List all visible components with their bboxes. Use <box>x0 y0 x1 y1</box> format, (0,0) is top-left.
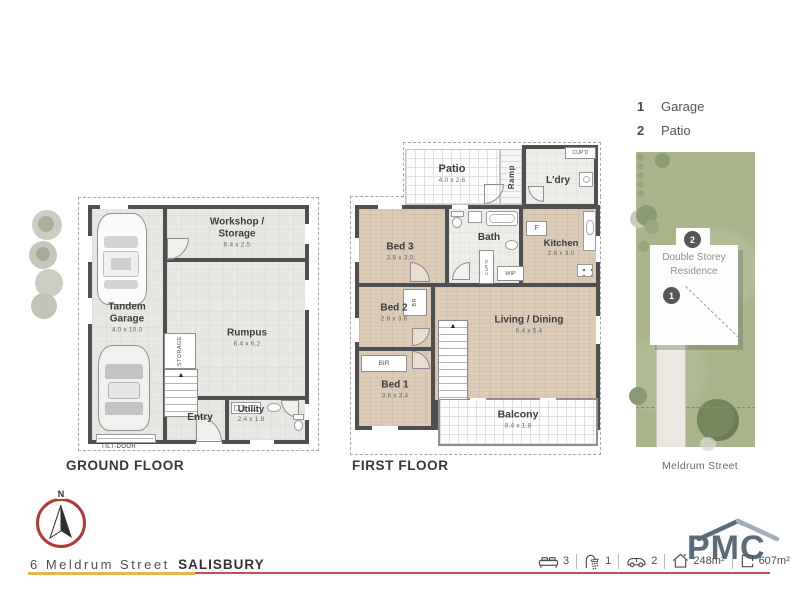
stat-cars: 2 <box>626 554 657 568</box>
legend-number: 1 <box>637 99 653 114</box>
divider <box>664 554 665 569</box>
legend: 1 Garage 2 Patio <box>637 99 704 138</box>
land-area-icon <box>740 553 755 569</box>
shrub <box>637 190 644 197</box>
stairs-up-arrow-icon: ▲ <box>450 323 457 330</box>
storage-label: STORAGE <box>177 336 183 366</box>
toilet-bowl <box>452 217 462 228</box>
entry-label: Entry <box>175 412 225 424</box>
window <box>305 280 309 310</box>
shower-vanity <box>468 211 482 223</box>
window <box>100 205 128 209</box>
shrub <box>637 181 644 188</box>
bed3-label: Bed 3 3.8 x 3.0 <box>375 242 425 263</box>
stat-house-area: 248m² <box>672 553 724 569</box>
garage-label: Tandem Garage 4.0 x 10.0 <box>98 302 156 335</box>
divider <box>732 554 733 569</box>
living-label: Living / Dining 6.4 x 5.4 <box>474 315 584 336</box>
compass-needle-icon <box>39 501 83 545</box>
tree <box>697 399 739 441</box>
window <box>355 318 359 342</box>
address-street: 6 Meldrum Street <box>30 557 170 572</box>
driveway <box>656 345 686 447</box>
balcony-label: Balcony 8.4 x 1.8 <box>483 408 553 429</box>
legend-label: Garage <box>661 99 704 114</box>
divider <box>576 554 577 569</box>
window <box>88 236 92 262</box>
street-label: Meldrum Street <box>640 460 760 472</box>
ramp: Ramp <box>500 149 522 205</box>
window <box>305 404 309 420</box>
fridge: F <box>526 221 547 236</box>
shrub <box>638 241 649 252</box>
built-in-robe: BIR <box>361 355 407 372</box>
legend-label: Patio <box>661 123 691 138</box>
window <box>250 440 274 444</box>
window <box>596 316 600 344</box>
shrub <box>700 437 716 451</box>
window <box>596 236 600 262</box>
ramp-label: Ramp <box>507 163 516 191</box>
car-top-view <box>97 213 147 305</box>
divider <box>618 554 619 569</box>
window <box>305 224 309 244</box>
first-floor-boundary <box>350 196 404 197</box>
compass-north-label: N <box>57 489 66 499</box>
patio-label: Patio 4.0 x 2.6 <box>422 163 482 185</box>
door-opening <box>452 205 468 209</box>
boundary-line <box>636 407 755 408</box>
car-icon <box>626 554 647 568</box>
shrub <box>629 387 647 405</box>
address: 6 Meldrum Street SALISBURY <box>30 556 265 574</box>
bathtub <box>486 211 518 226</box>
utility-label: Utility 2.4 x 1.8 <box>226 404 276 424</box>
bath-label: Bath <box>467 232 511 244</box>
kitchen-label: Kitchen 2.6 x 3.0 <box>533 238 589 258</box>
workshop-label: Workshop / Storage 6.4 x 2.5 <box>199 217 275 250</box>
legend-number: 2 <box>637 123 653 138</box>
house-area-icon <box>672 553 689 569</box>
rumpus-label: Rumpus 6.4 x 6.2 <box>212 328 282 349</box>
window <box>355 238 359 262</box>
stat-bathrooms: 1 <box>584 553 611 570</box>
ground-floor-title: GROUND FLOOR <box>66 458 184 473</box>
shrub <box>655 153 670 168</box>
shrub <box>36 247 50 261</box>
laundry-label: L'dry <box>533 175 583 187</box>
walk-in-pantry: WIP <box>497 266 524 281</box>
car-top-view <box>98 345 150 431</box>
shrub <box>637 172 644 179</box>
shrub <box>637 154 644 161</box>
tilt-door-label: TILT-DOOR <box>99 444 138 450</box>
bed-icon <box>538 554 559 569</box>
shrub <box>637 163 644 170</box>
cupboard: CUP'D <box>479 250 494 284</box>
shrub <box>38 216 54 232</box>
stat-bedrooms: 3 <box>538 554 569 569</box>
toilet-bowl <box>294 420 303 431</box>
shrub <box>31 293 57 319</box>
badge-patio: 2 <box>684 231 701 248</box>
shrub <box>645 220 659 234</box>
window <box>378 205 402 209</box>
floorplan-brochure: STORAGE ▲ <box>0 0 800 600</box>
cupboard: CUP'D <box>565 147 596 159</box>
address-suburb: SALISBURY <box>178 557 265 572</box>
stairs-up-arrow-icon: ▲ <box>178 372 185 379</box>
tilt-door <box>96 434 156 443</box>
cooktop <box>577 264 593 277</box>
property-stats: 3 1 <box>538 551 790 571</box>
badge-garage: 1 <box>663 287 680 304</box>
bed1-label: Bed 1 3.6 x 3.4 <box>370 380 420 401</box>
storage-cupboard: STORAGE <box>164 333 196 369</box>
residence-label: Double Storey Residence <box>652 251 736 278</box>
stat-land-area: 607m² <box>740 553 790 569</box>
door-opening <box>540 398 556 400</box>
window <box>88 298 92 324</box>
bed2-label: Bed 2 2.8 x 3.6 <box>369 303 419 324</box>
first-floor-stairs: ▲ <box>438 320 468 400</box>
accent-line-red <box>195 572 770 574</box>
first-floor-title: FIRST FLOOR <box>352 458 449 473</box>
window <box>372 426 398 430</box>
door-opening <box>470 398 486 400</box>
shower-icon <box>584 553 601 570</box>
ground-stairs: ▲ <box>164 369 198 417</box>
